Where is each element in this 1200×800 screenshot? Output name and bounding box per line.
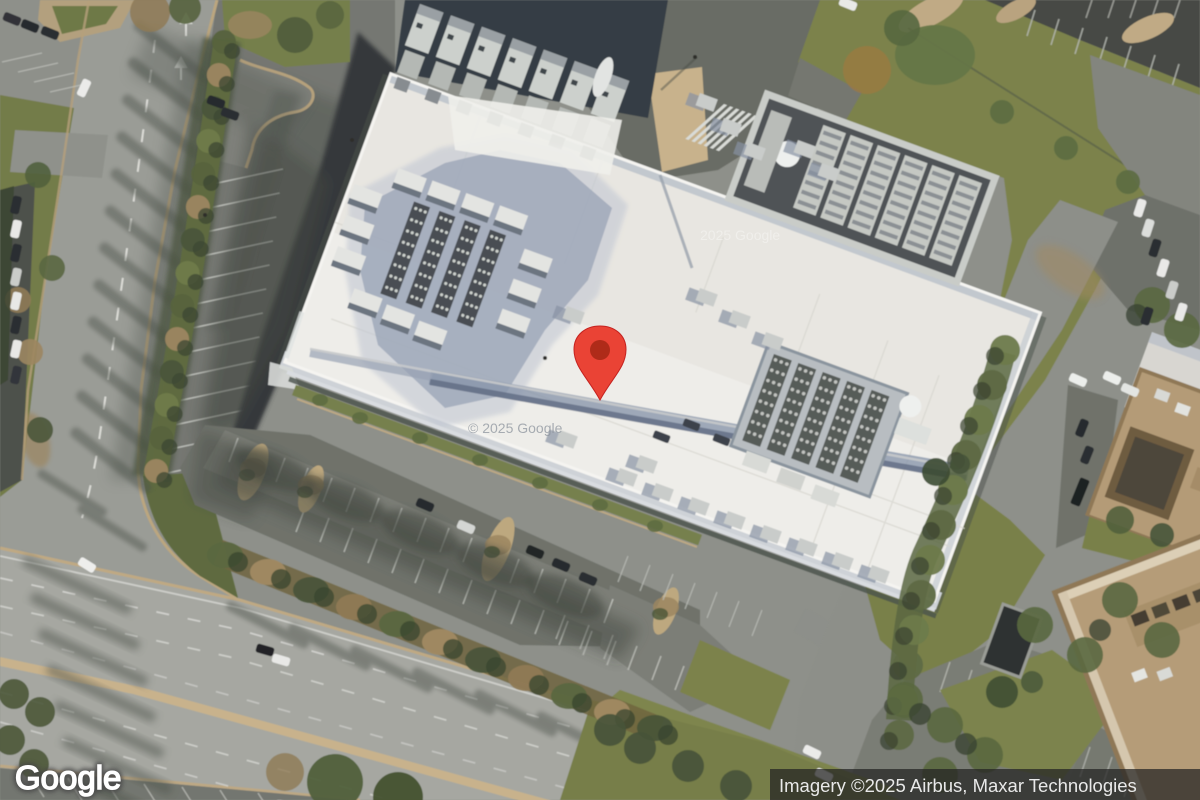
svg-text:2025 Google: 2025 Google (700, 227, 780, 243)
svg-text:© 2025 Google: © 2025 Google (468, 420, 563, 436)
svg-text:Imagery ©2025 Airbus, Maxar Te: Imagery ©2025 Airbus, Maxar Technologies (779, 775, 1137, 796)
svg-text:Google: Google (15, 759, 121, 796)
